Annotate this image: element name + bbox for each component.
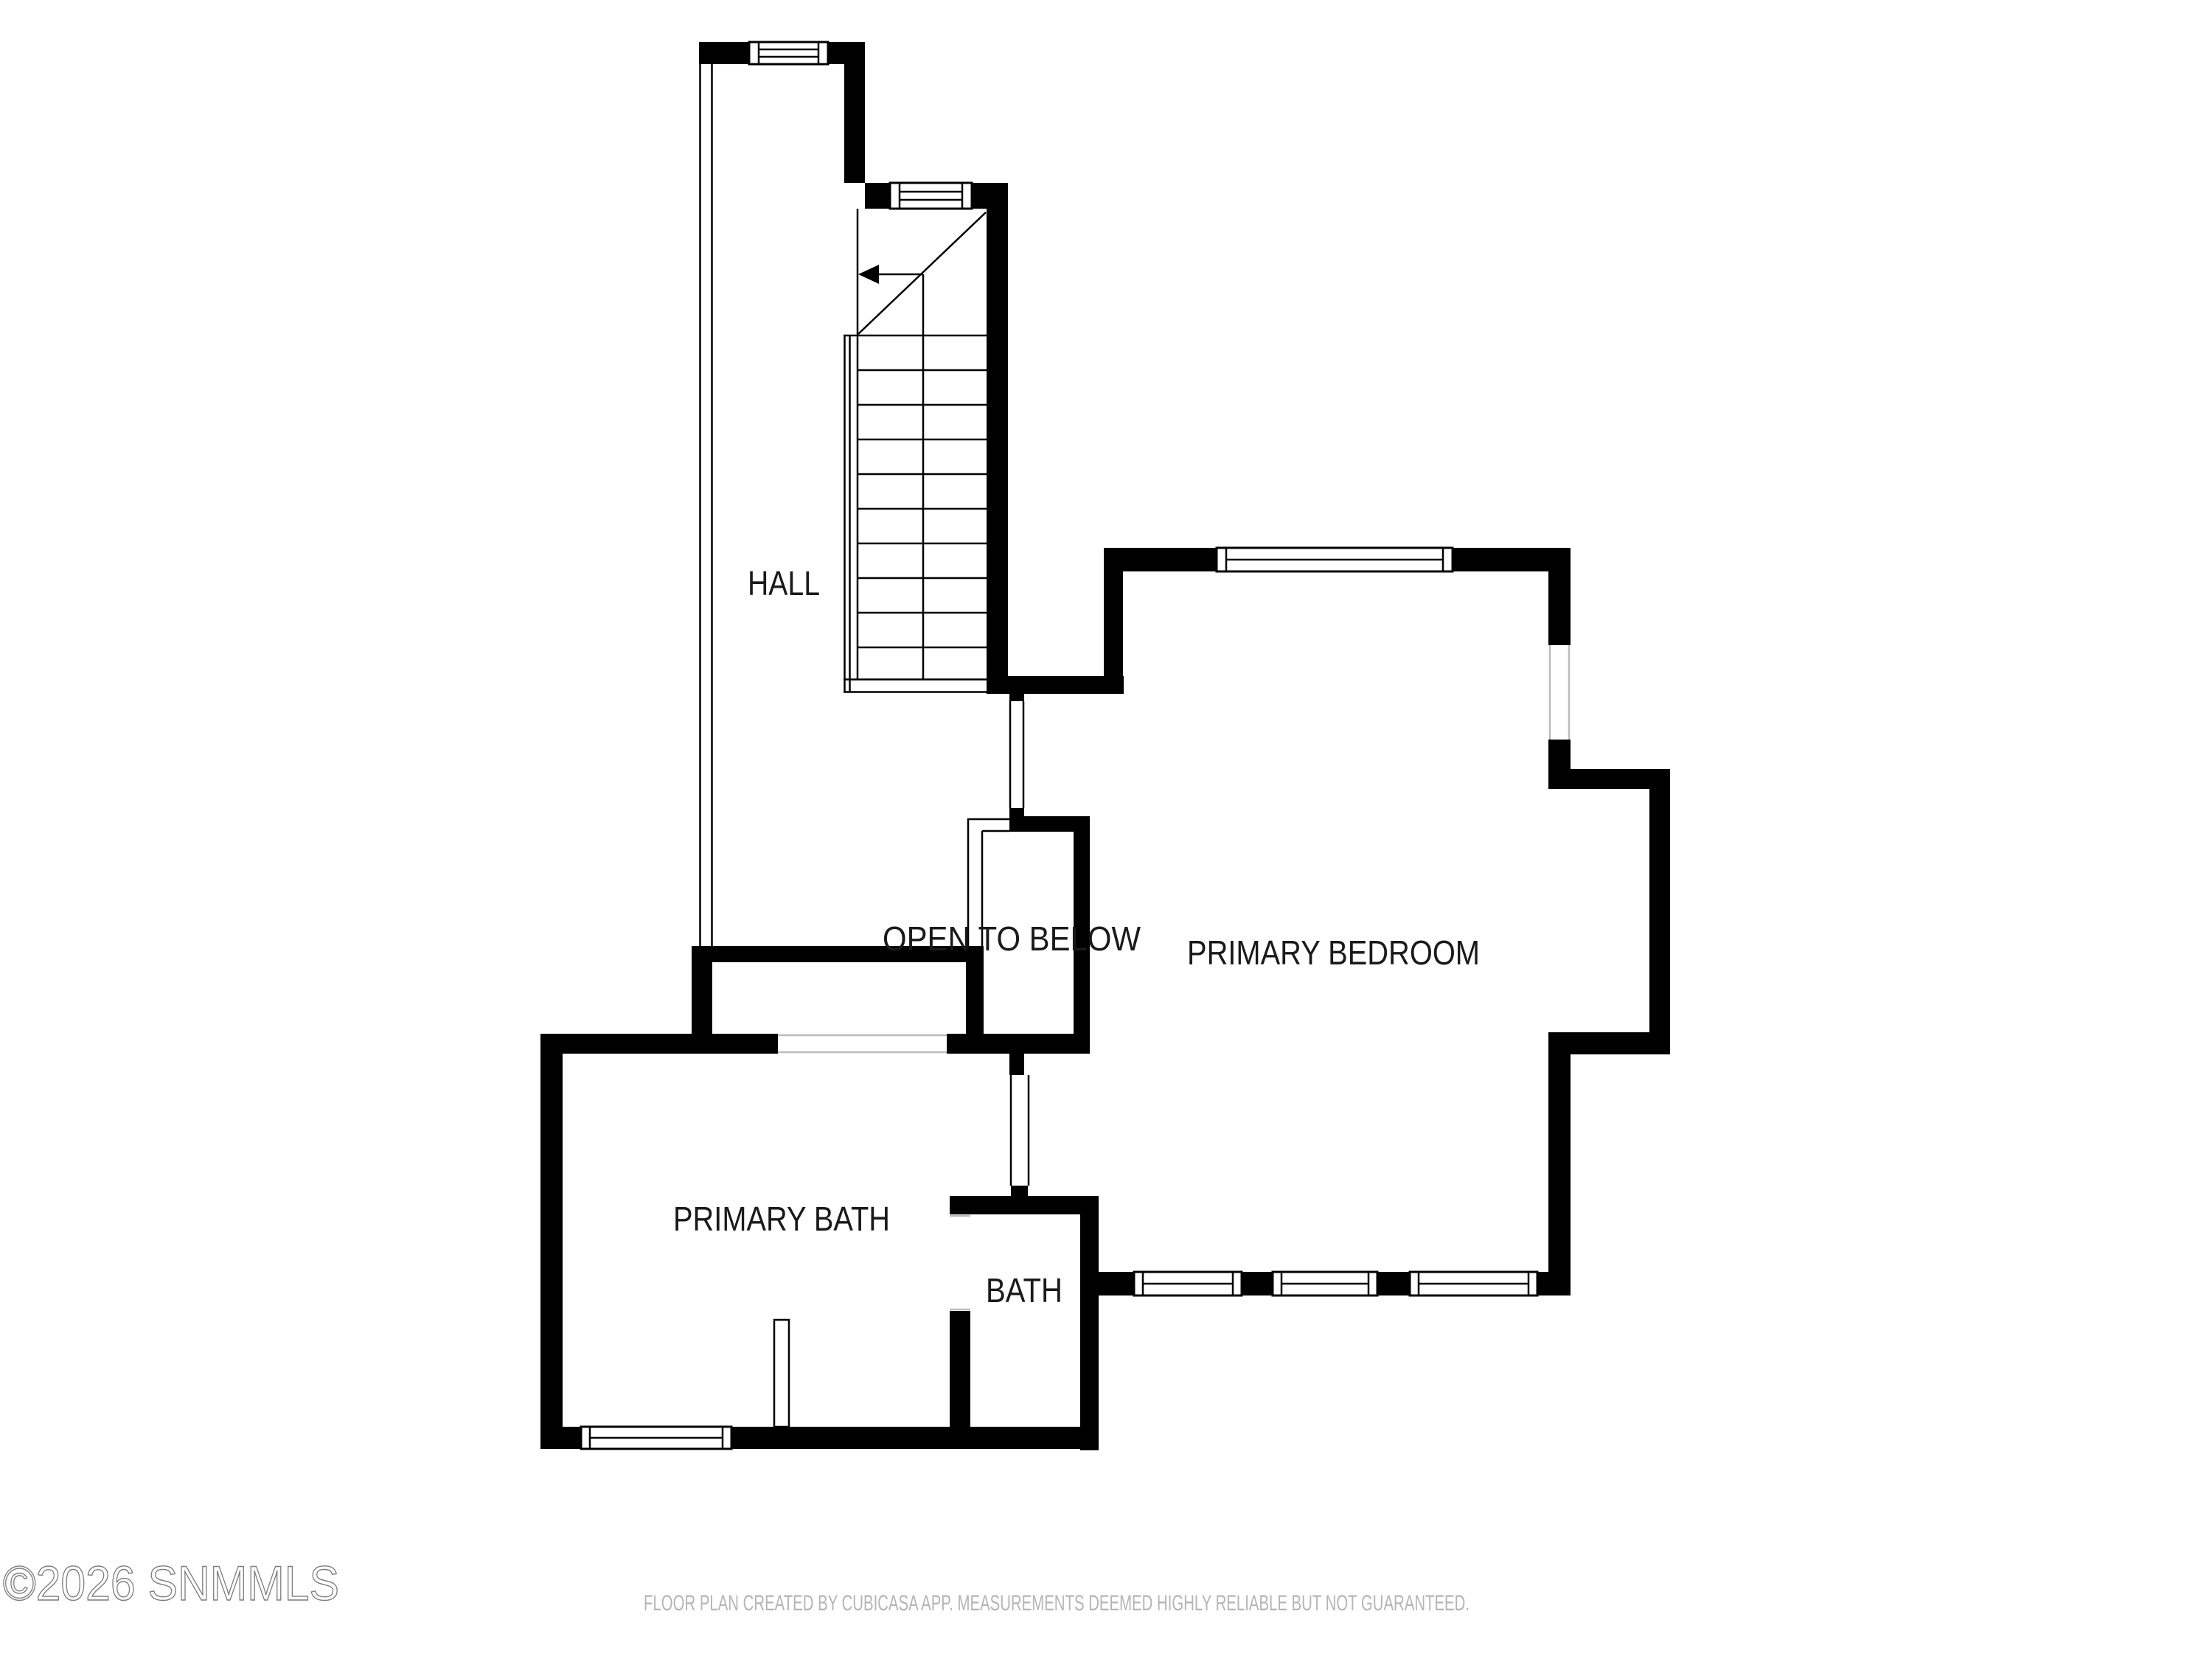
wall — [1242, 1272, 1273, 1295]
window — [581, 1427, 731, 1449]
primary-bath-room — [540, 1034, 1099, 1449]
door-opening — [1011, 1075, 1029, 1186]
window — [1273, 1272, 1377, 1295]
wall — [1104, 571, 1123, 694]
staircase — [844, 209, 987, 692]
wall-stub — [1011, 1186, 1028, 1196]
room-label-open-to-below: OPEN TO BELOW — [883, 919, 1141, 958]
window — [890, 183, 972, 209]
room-label-bath: BATH — [986, 1271, 1062, 1310]
window — [1134, 1272, 1242, 1295]
door-opening — [950, 1214, 970, 1311]
wall — [1453, 548, 1571, 571]
door-opening — [1010, 701, 1023, 808]
wall-stub — [1009, 694, 1024, 701]
wall — [987, 209, 1008, 694]
wall — [540, 1034, 563, 1449]
wall — [1548, 571, 1571, 645]
wall-opening — [778, 1034, 947, 1054]
room-label-primary-bath: PRIMARY BATH — [673, 1200, 890, 1238]
wall — [947, 1034, 1090, 1054]
wall — [1377, 1272, 1410, 1295]
wall — [950, 1311, 970, 1427]
wall — [865, 183, 890, 209]
disclaimer-text: FLOOR PLAN CREATED BY CUBICASA APP. MEAS… — [644, 1591, 1470, 1615]
wall — [699, 42, 749, 64]
room-label-primary-bedroom: PRIMARY BEDROOM — [1187, 933, 1480, 972]
wall — [844, 64, 865, 183]
room-label-hall: HALL — [748, 564, 820, 602]
wall — [828, 42, 865, 64]
wall — [1080, 1196, 1099, 1450]
wall — [540, 1427, 581, 1449]
wall — [1548, 1032, 1571, 1295]
wall — [1649, 769, 1670, 1054]
wall — [972, 183, 1008, 209]
wall-stub — [1009, 1054, 1024, 1075]
primary-bedroom — [1080, 548, 1670, 1295]
wall — [987, 676, 1124, 694]
wall — [1104, 548, 1217, 571]
bath-room — [950, 1196, 1099, 1450]
hall-stairwell — [699, 42, 1124, 946]
watermark-text: ©2026 SNMMLS — [3, 1556, 339, 1610]
stair-treads — [858, 335, 987, 647]
window — [1217, 548, 1453, 571]
wall — [950, 1196, 1095, 1214]
window — [1410, 1272, 1537, 1295]
window — [749, 42, 828, 64]
wall — [1537, 1272, 1571, 1295]
thin-wall — [700, 64, 712, 946]
wall-stub — [1009, 808, 1024, 816]
shower-partition — [774, 1320, 789, 1427]
window — [1548, 645, 1571, 740]
floor-plan-page: HALL OPEN TO BELOW PRIMARY BEDROOM PRIMA… — [0, 0, 2212, 1659]
wall — [731, 1427, 1099, 1449]
wall — [540, 1034, 778, 1054]
landing-closet — [540, 946, 1090, 1054]
floor-plan-svg: HALL OPEN TO BELOW PRIMARY BEDROOM PRIMA… — [0, 0, 2212, 1659]
